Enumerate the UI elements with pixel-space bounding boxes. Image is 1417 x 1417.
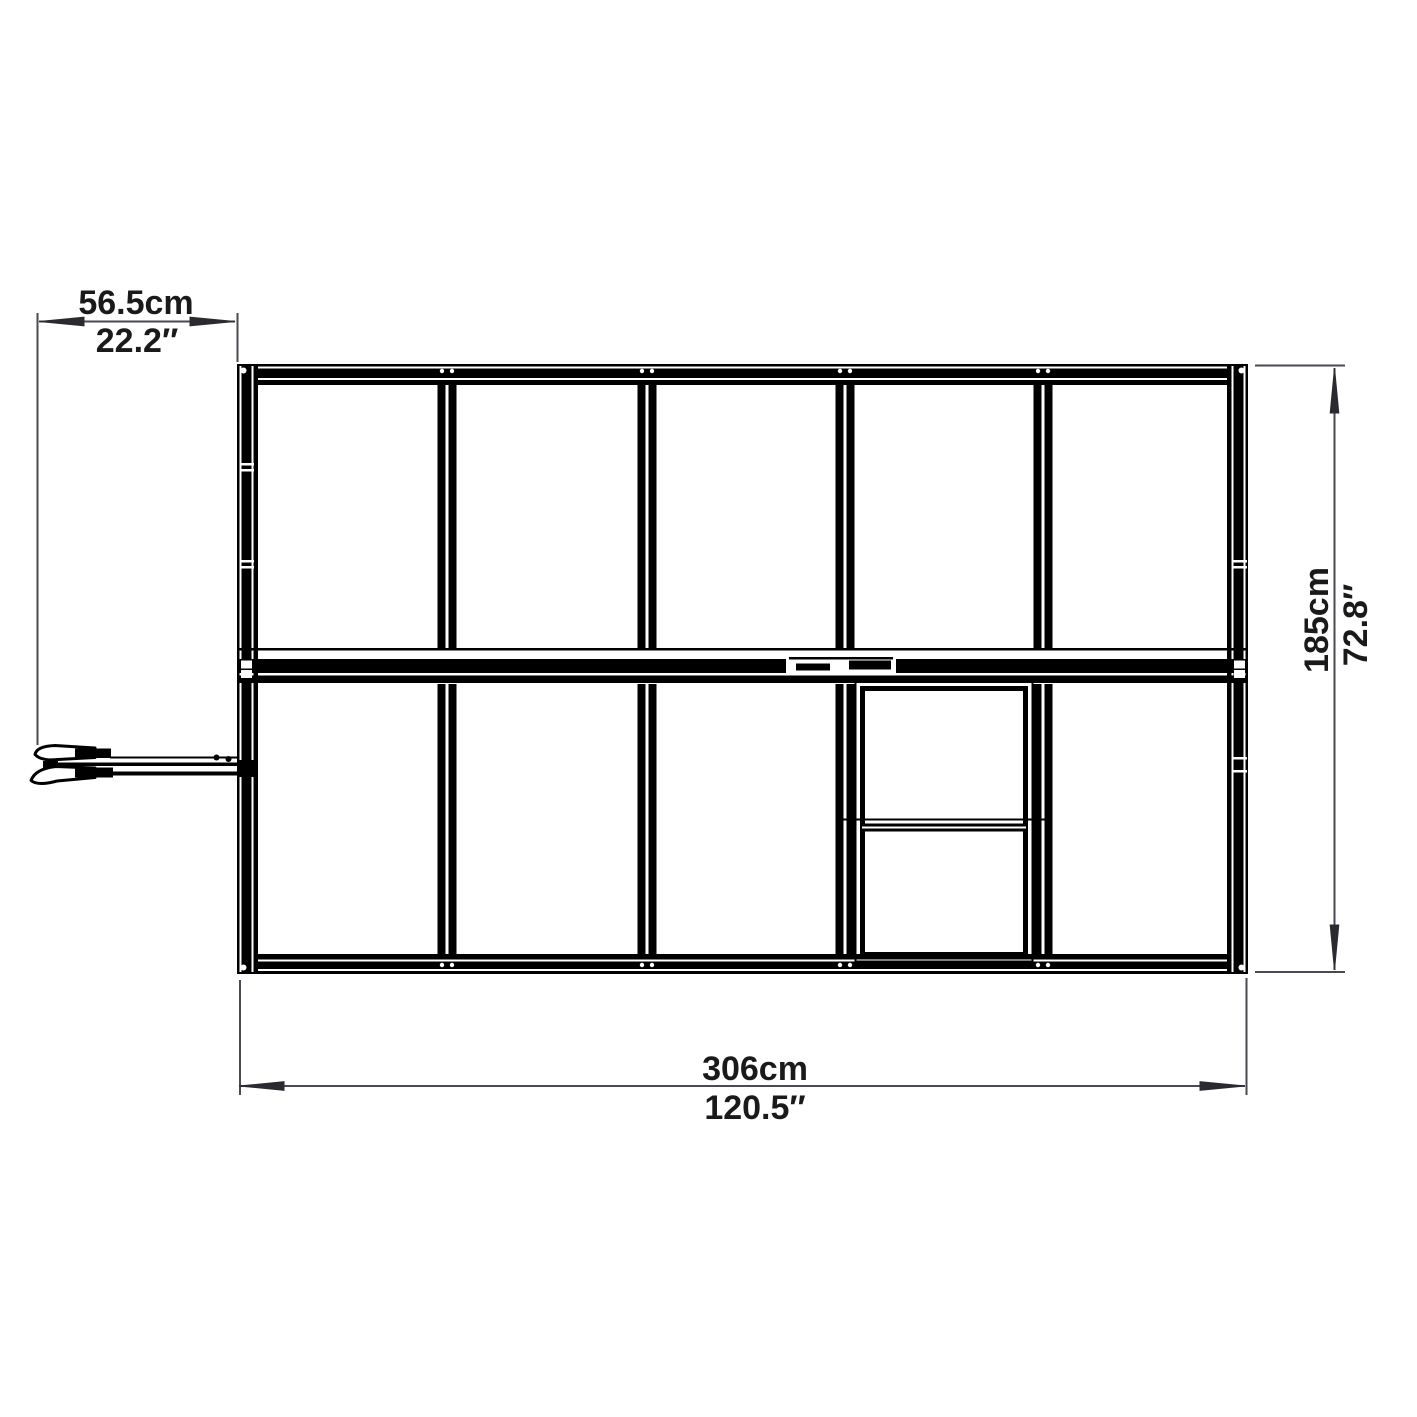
dim-arrow-right: [190, 317, 235, 326]
ridge-beam: [237, 648, 1248, 683]
label-door-imperial: 22.2″: [96, 322, 178, 360]
diagram-canvas: 56.5cm 22.2″ 185cm 72.8″ 306cm 120.5″: [0, 0, 1417, 1417]
greenhouse-floor-plan-diagram: 56.5cm 22.2″ 185cm 72.8″ 306cm 120.5″: [0, 0, 1417, 1417]
dim-arrow-down: [1330, 925, 1339, 970]
label-width-metric: 306cm: [702, 1050, 808, 1088]
roof-vent-window: [836, 682, 1050, 962]
door-open: [31, 746, 257, 784]
label-width-imperial: 120.5″: [704, 1089, 805, 1127]
label-door-metric: 56.5cm: [78, 284, 193, 322]
dim-arrow-right: [1200, 1082, 1245, 1091]
vent-hinge-detail: [786, 651, 896, 673]
dim-arrow-up: [1330, 368, 1339, 413]
label-depth-metric: 185cm: [1298, 567, 1336, 673]
dim-arrow-left: [39, 317, 84, 326]
label-depth-imperial: 72.8″: [1337, 584, 1375, 666]
dim-arrow-left: [239, 1082, 284, 1091]
dimension-door: [38, 313, 238, 745]
dimension-labels: 56.5cm 22.2″ 185cm 72.8″ 306cm 120.5″: [78, 284, 1375, 1127]
